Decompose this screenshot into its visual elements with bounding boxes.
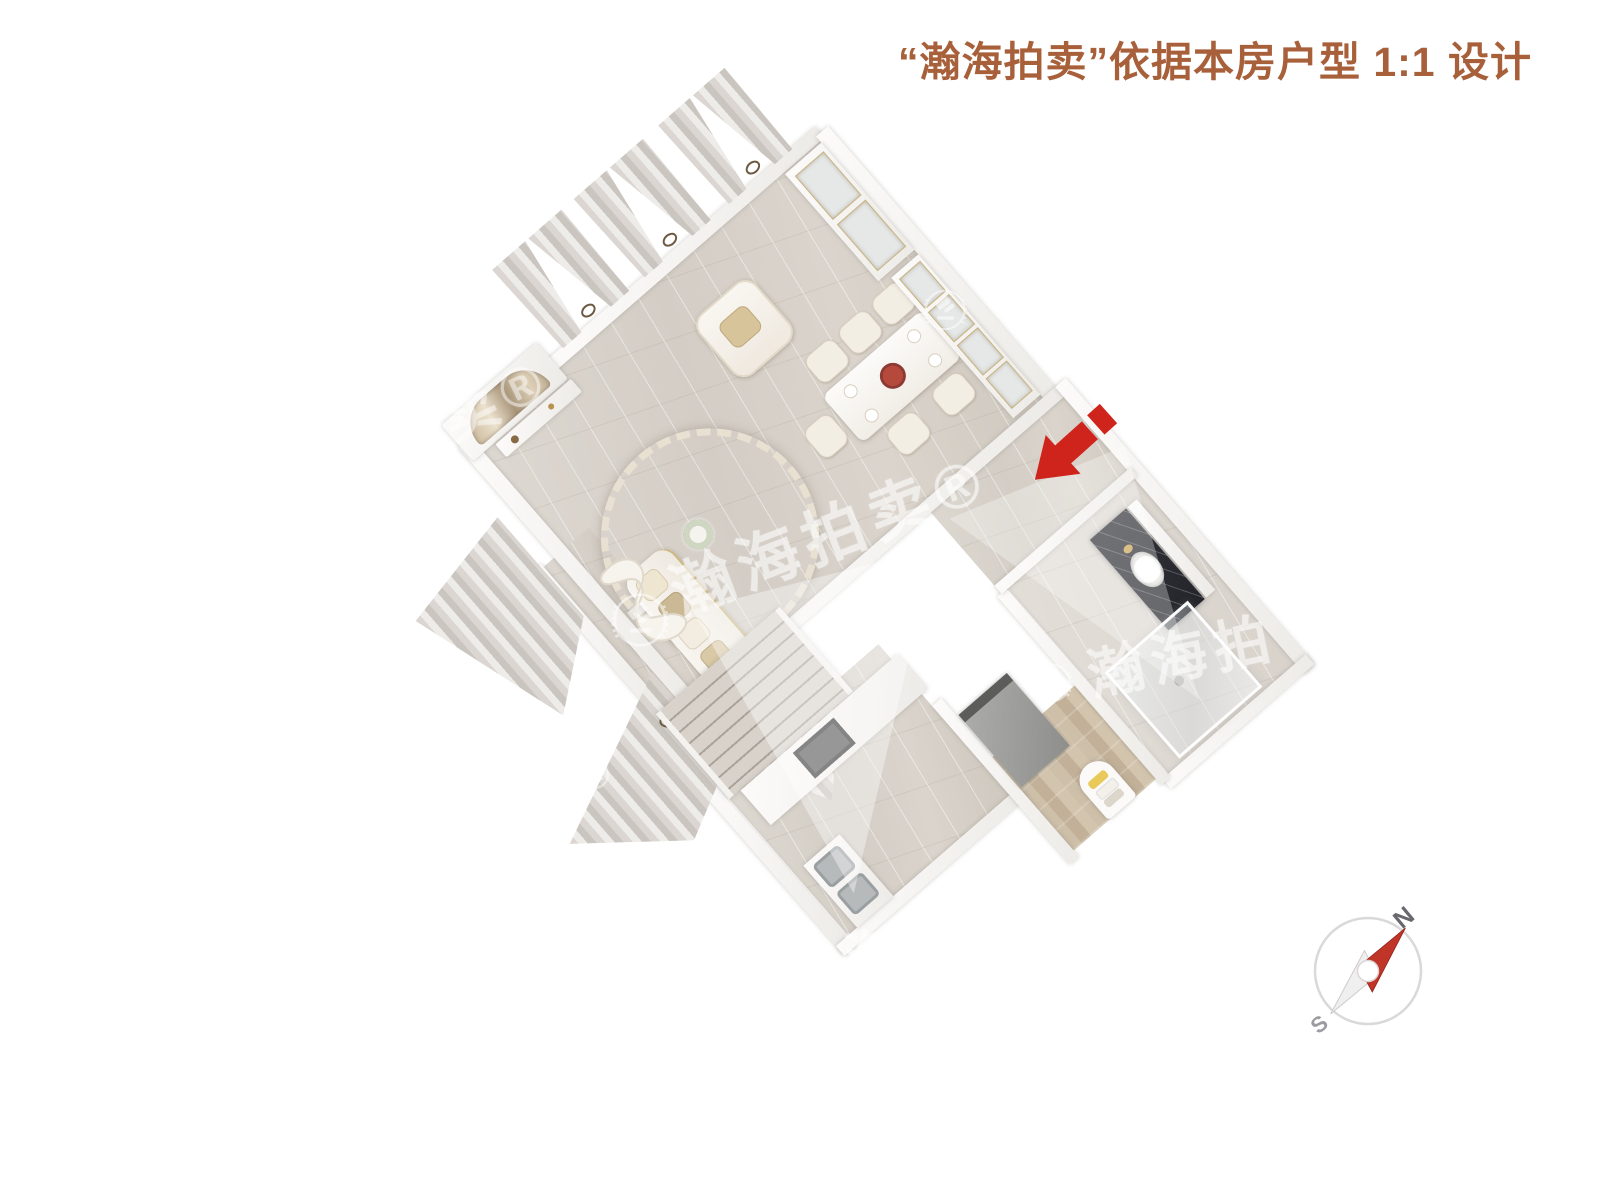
floor-plan (403, 56, 1350, 1027)
compass-north-label: N (1388, 901, 1420, 934)
entrance-arrow (1008, 385, 1143, 495)
compass-south-label: S (1306, 1010, 1333, 1039)
canvas: { "title": { "text": "“瀚海拍卖”依据本房户型 1:1 设… (0, 0, 1600, 1200)
page-title: “瀚海拍卖”依据本房户型 1:1 设计 (898, 28, 1532, 88)
compass: N S (1285, 872, 1455, 1042)
